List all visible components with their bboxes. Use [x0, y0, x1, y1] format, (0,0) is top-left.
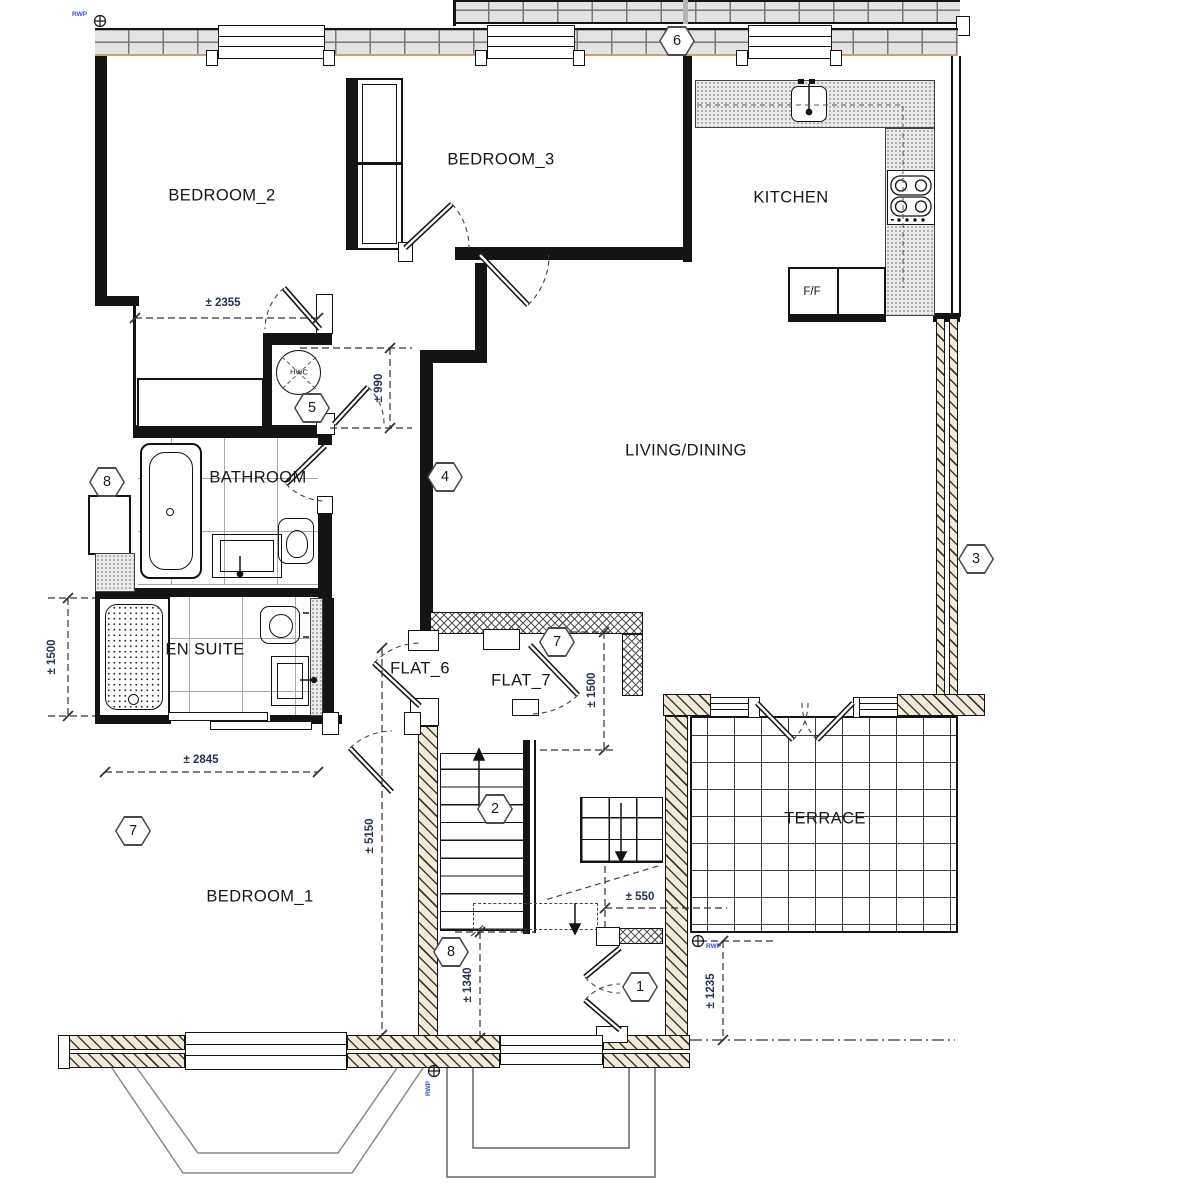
- floor-plan-canvas: F/F HWC: [0, 0, 1194, 1194]
- dimension-entrance-depth: ± 1235: [705, 973, 717, 1008]
- linework-layer: [0, 0, 1194, 1194]
- door-swing-arcs: [265, 204, 817, 1000]
- rwp-label: RWP: [706, 943, 721, 950]
- room-label-bedroom3: BEDROOM_3: [447, 151, 554, 170]
- marker-hexagon-8b: 8: [433, 937, 469, 967]
- rwp-label: RWP: [72, 11, 87, 18]
- marker-hexagon-7b: 7: [115, 816, 151, 846]
- dimension-ensuite-depth: ± 1500: [46, 639, 58, 674]
- room-label-kitchen: KITCHEN: [753, 189, 828, 208]
- rwp-label: RWP: [425, 1081, 432, 1096]
- hob-burners: [891, 176, 931, 222]
- dimension-flat7-clearance: ± 1500: [586, 672, 598, 707]
- marker-hexagon-3: 3: [958, 544, 994, 574]
- dimension-bedroom1-width: ± 2845: [183, 754, 218, 766]
- dimension-lobby-width: ± 1340: [462, 967, 474, 1002]
- dimension-stair-offset: ± 550: [626, 891, 655, 903]
- dimension-ticks: [63, 313, 728, 1045]
- marker-hexagon-4: 4: [427, 462, 463, 492]
- marker-hexagon-2: 2: [477, 794, 513, 824]
- door-leaves: [284, 204, 853, 1030]
- marker-hexagon-8: 8: [89, 467, 125, 497]
- marker-hexagon-6: 6: [659, 26, 695, 56]
- bay-porch-outlines: [112, 1068, 655, 1177]
- stair-arrows: [474, 749, 626, 934]
- room-label-ensuite: EN SUITE: [165, 641, 244, 660]
- marker-hexagon-5: 5: [294, 393, 330, 423]
- marker-hexagon-7: 7: [539, 627, 575, 657]
- rwp-symbols: [94, 15, 704, 1077]
- tap-details: [237, 84, 811, 682]
- door-label-flat7: FLAT_7: [491, 672, 551, 691]
- marker-hexagon-1: 1: [622, 972, 658, 1002]
- dimension-bedroom1-length: ± 5150: [364, 818, 376, 853]
- room-label-bedroom1: BEDROOM_1: [206, 888, 313, 907]
- room-label-bathroom: BATHROOM: [209, 469, 306, 488]
- room-label-bedroom2: BEDROOM_2: [168, 187, 275, 206]
- door-label-flat6: FLAT_6: [390, 660, 450, 679]
- room-label-terrace: TERRACE: [784, 810, 866, 829]
- dimension-hwc-door: ± 990: [373, 374, 385, 403]
- hwc-dashes: [282, 357, 316, 389]
- room-label-living-dining: LIVING/DINING: [625, 442, 747, 461]
- dimension-bedroom2-width: ± 2355: [205, 297, 240, 309]
